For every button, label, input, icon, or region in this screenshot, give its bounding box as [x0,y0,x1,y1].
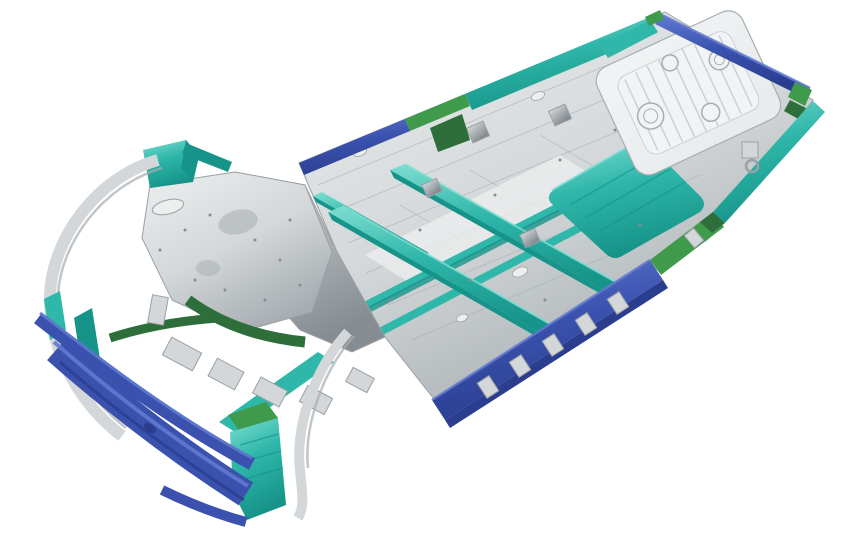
front-bumper-beam-upper [38,313,252,464]
hinge-pillar-rail [298,332,348,518]
underbody-render-svg [0,0,852,533]
render-canvas [0,0,852,533]
front-shock-tower [142,172,332,332]
